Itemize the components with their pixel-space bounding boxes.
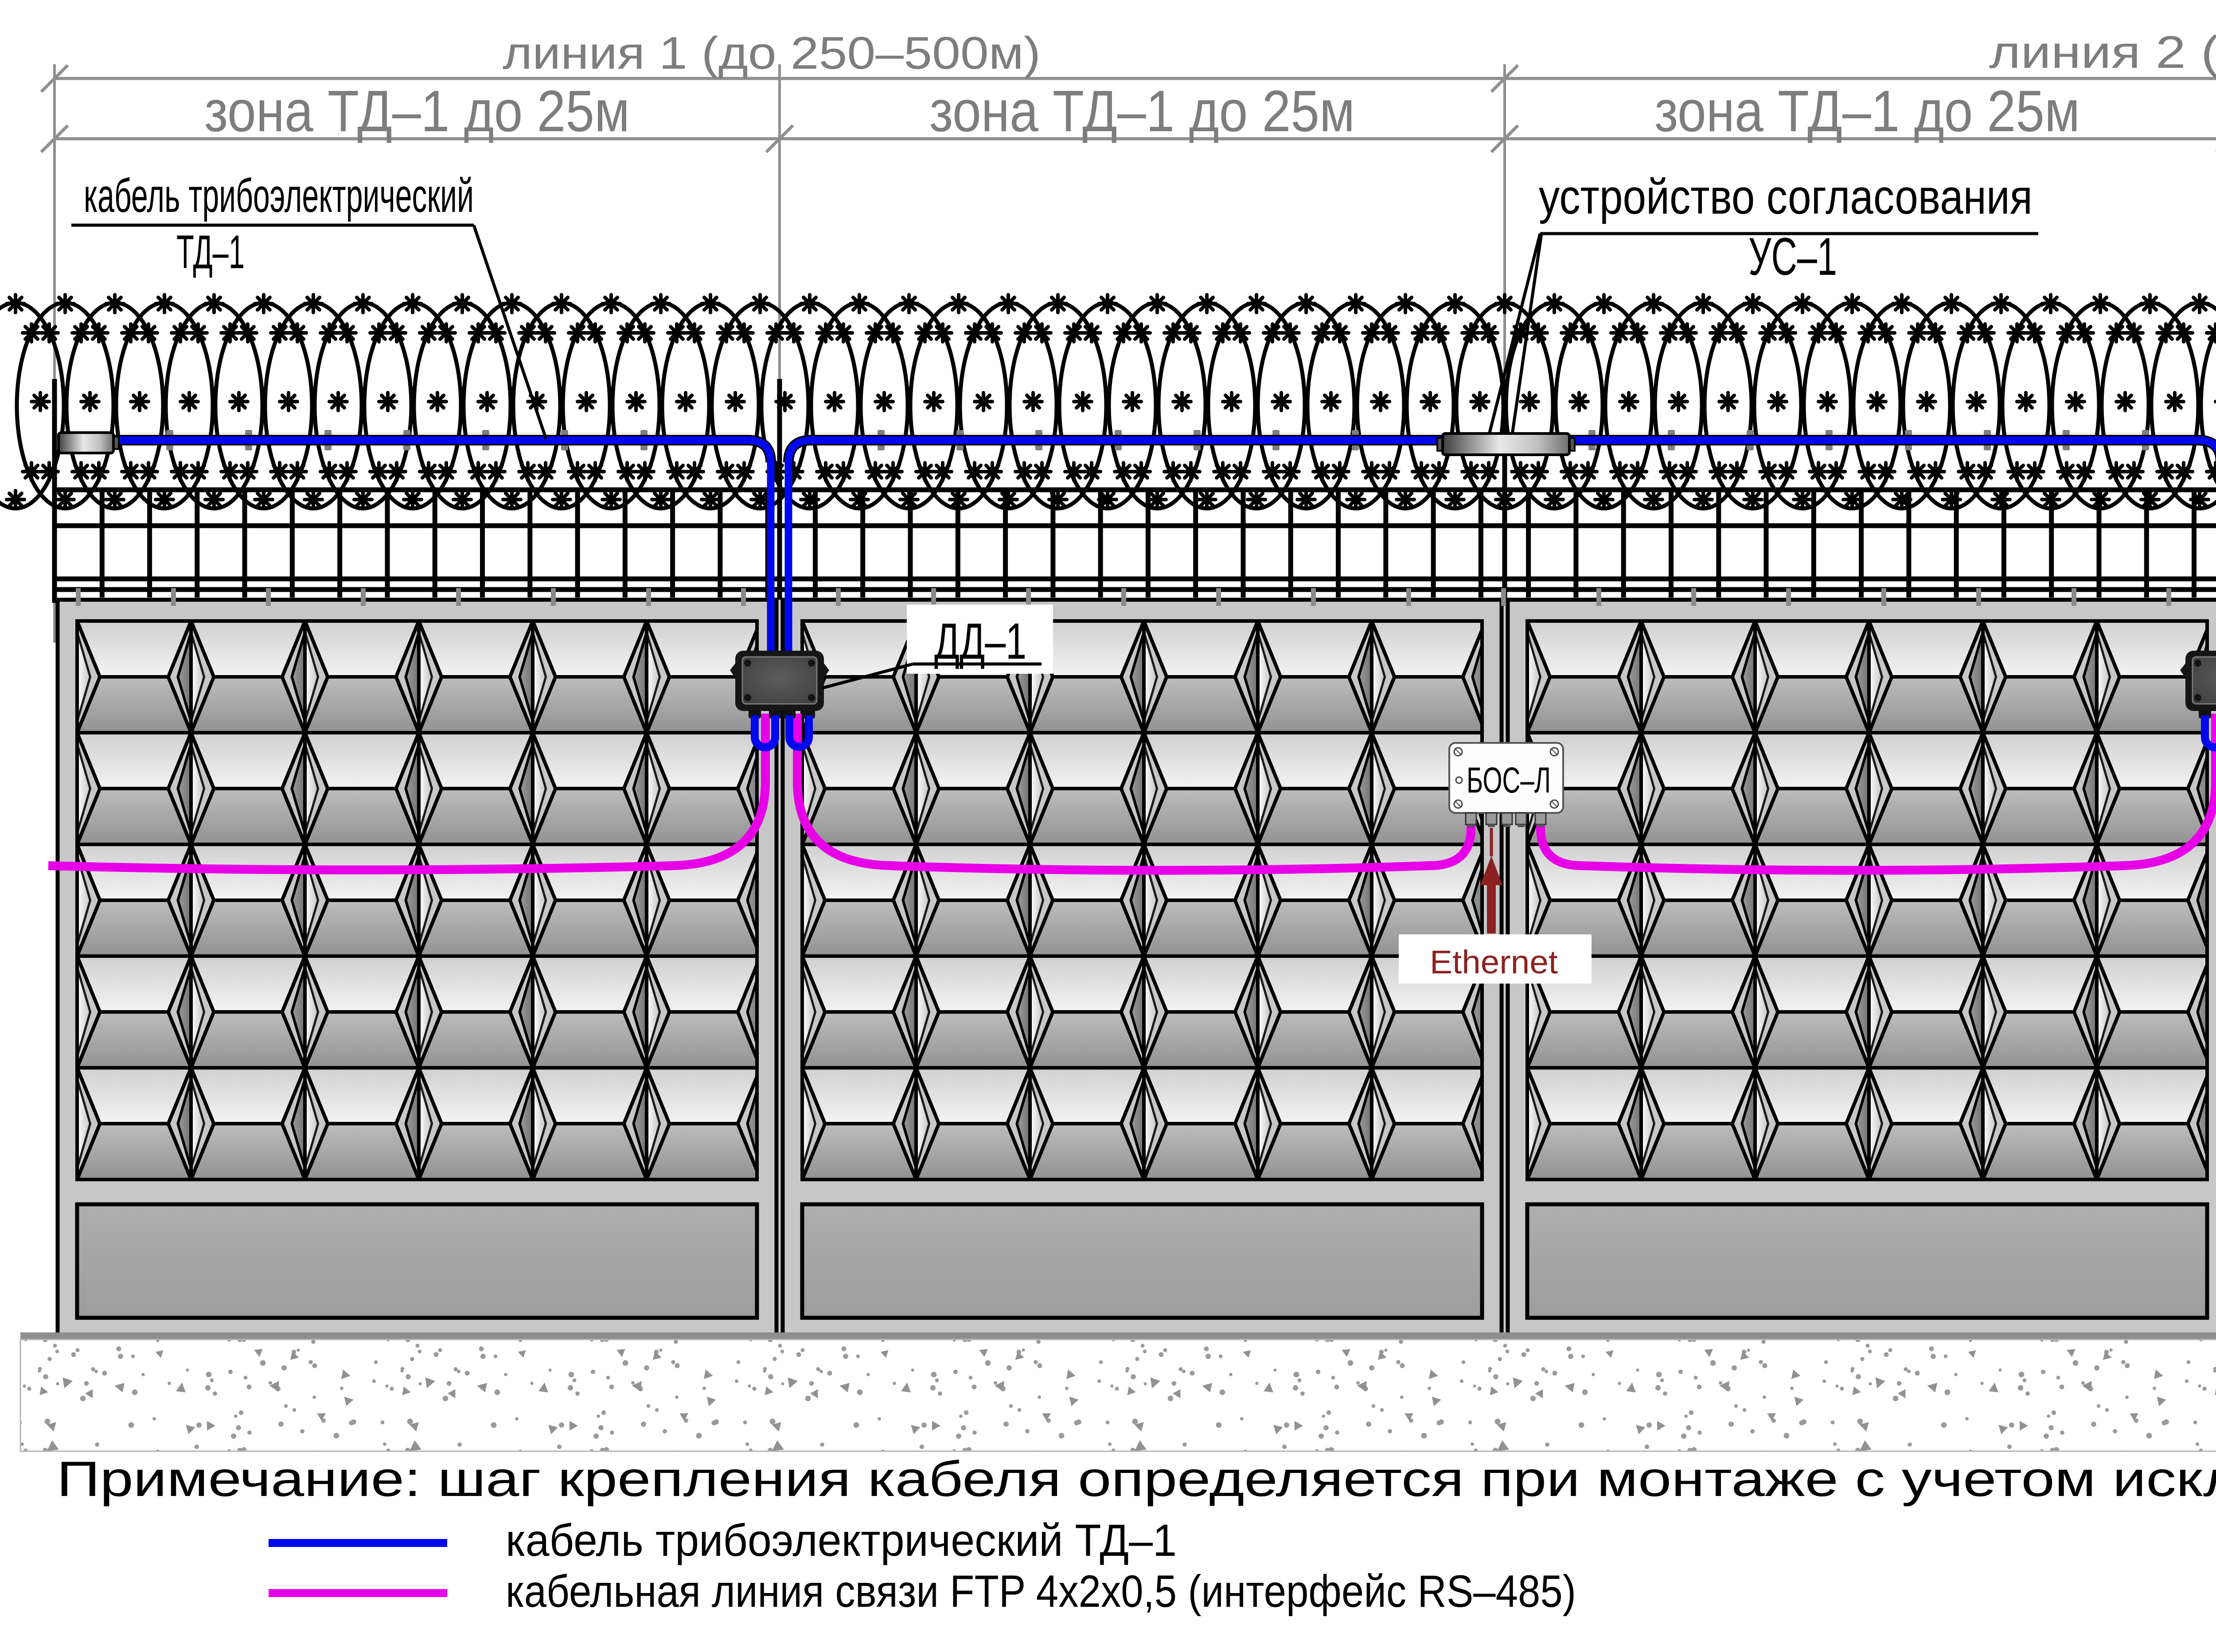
svg-text:линия 1 (до 250–500м): линия 1 (до 250–500м)	[503, 27, 1041, 78]
svg-text:БОС–Л: БОС–Л	[1467, 760, 1551, 801]
svg-text:линия 2 (до 250–500м): линия 2 (до 250–500м)	[1989, 27, 2216, 78]
svg-text:Примечание: шаг крепления кабе: Примечание: шаг крепления кабеля определ…	[57, 1451, 2216, 1507]
svg-text:кабельная линия связи FTP 4х2х: кабельная линия связи FTP 4х2х0,5 (интер…	[506, 1566, 1576, 1617]
svg-text:ТД–1: ТД–1	[176, 225, 245, 278]
svg-text:устройство согласования: устройство согласования	[1539, 170, 2033, 224]
svg-text:кабель трибоэлектрический ТД–1: кабель трибоэлектрический ТД–1	[506, 1515, 1177, 1566]
svg-text:зона ТД–1 до 25м: зона ТД–1 до 25м	[929, 78, 1355, 144]
svg-text:кабель трибоэлектрический: кабель трибоэлектрический	[84, 169, 474, 222]
svg-text:Ethernet: Ethernet	[1430, 944, 1558, 980]
svg-text:УС–1: УС–1	[1748, 227, 1837, 286]
svg-text:зона ТД–1 до 25м: зона ТД–1 до 25м	[204, 78, 630, 144]
svg-text:ДД–1: ДД–1	[934, 613, 1026, 670]
svg-text:зона ТД–1 до 25м: зона ТД–1 до 25м	[1654, 78, 2080, 144]
